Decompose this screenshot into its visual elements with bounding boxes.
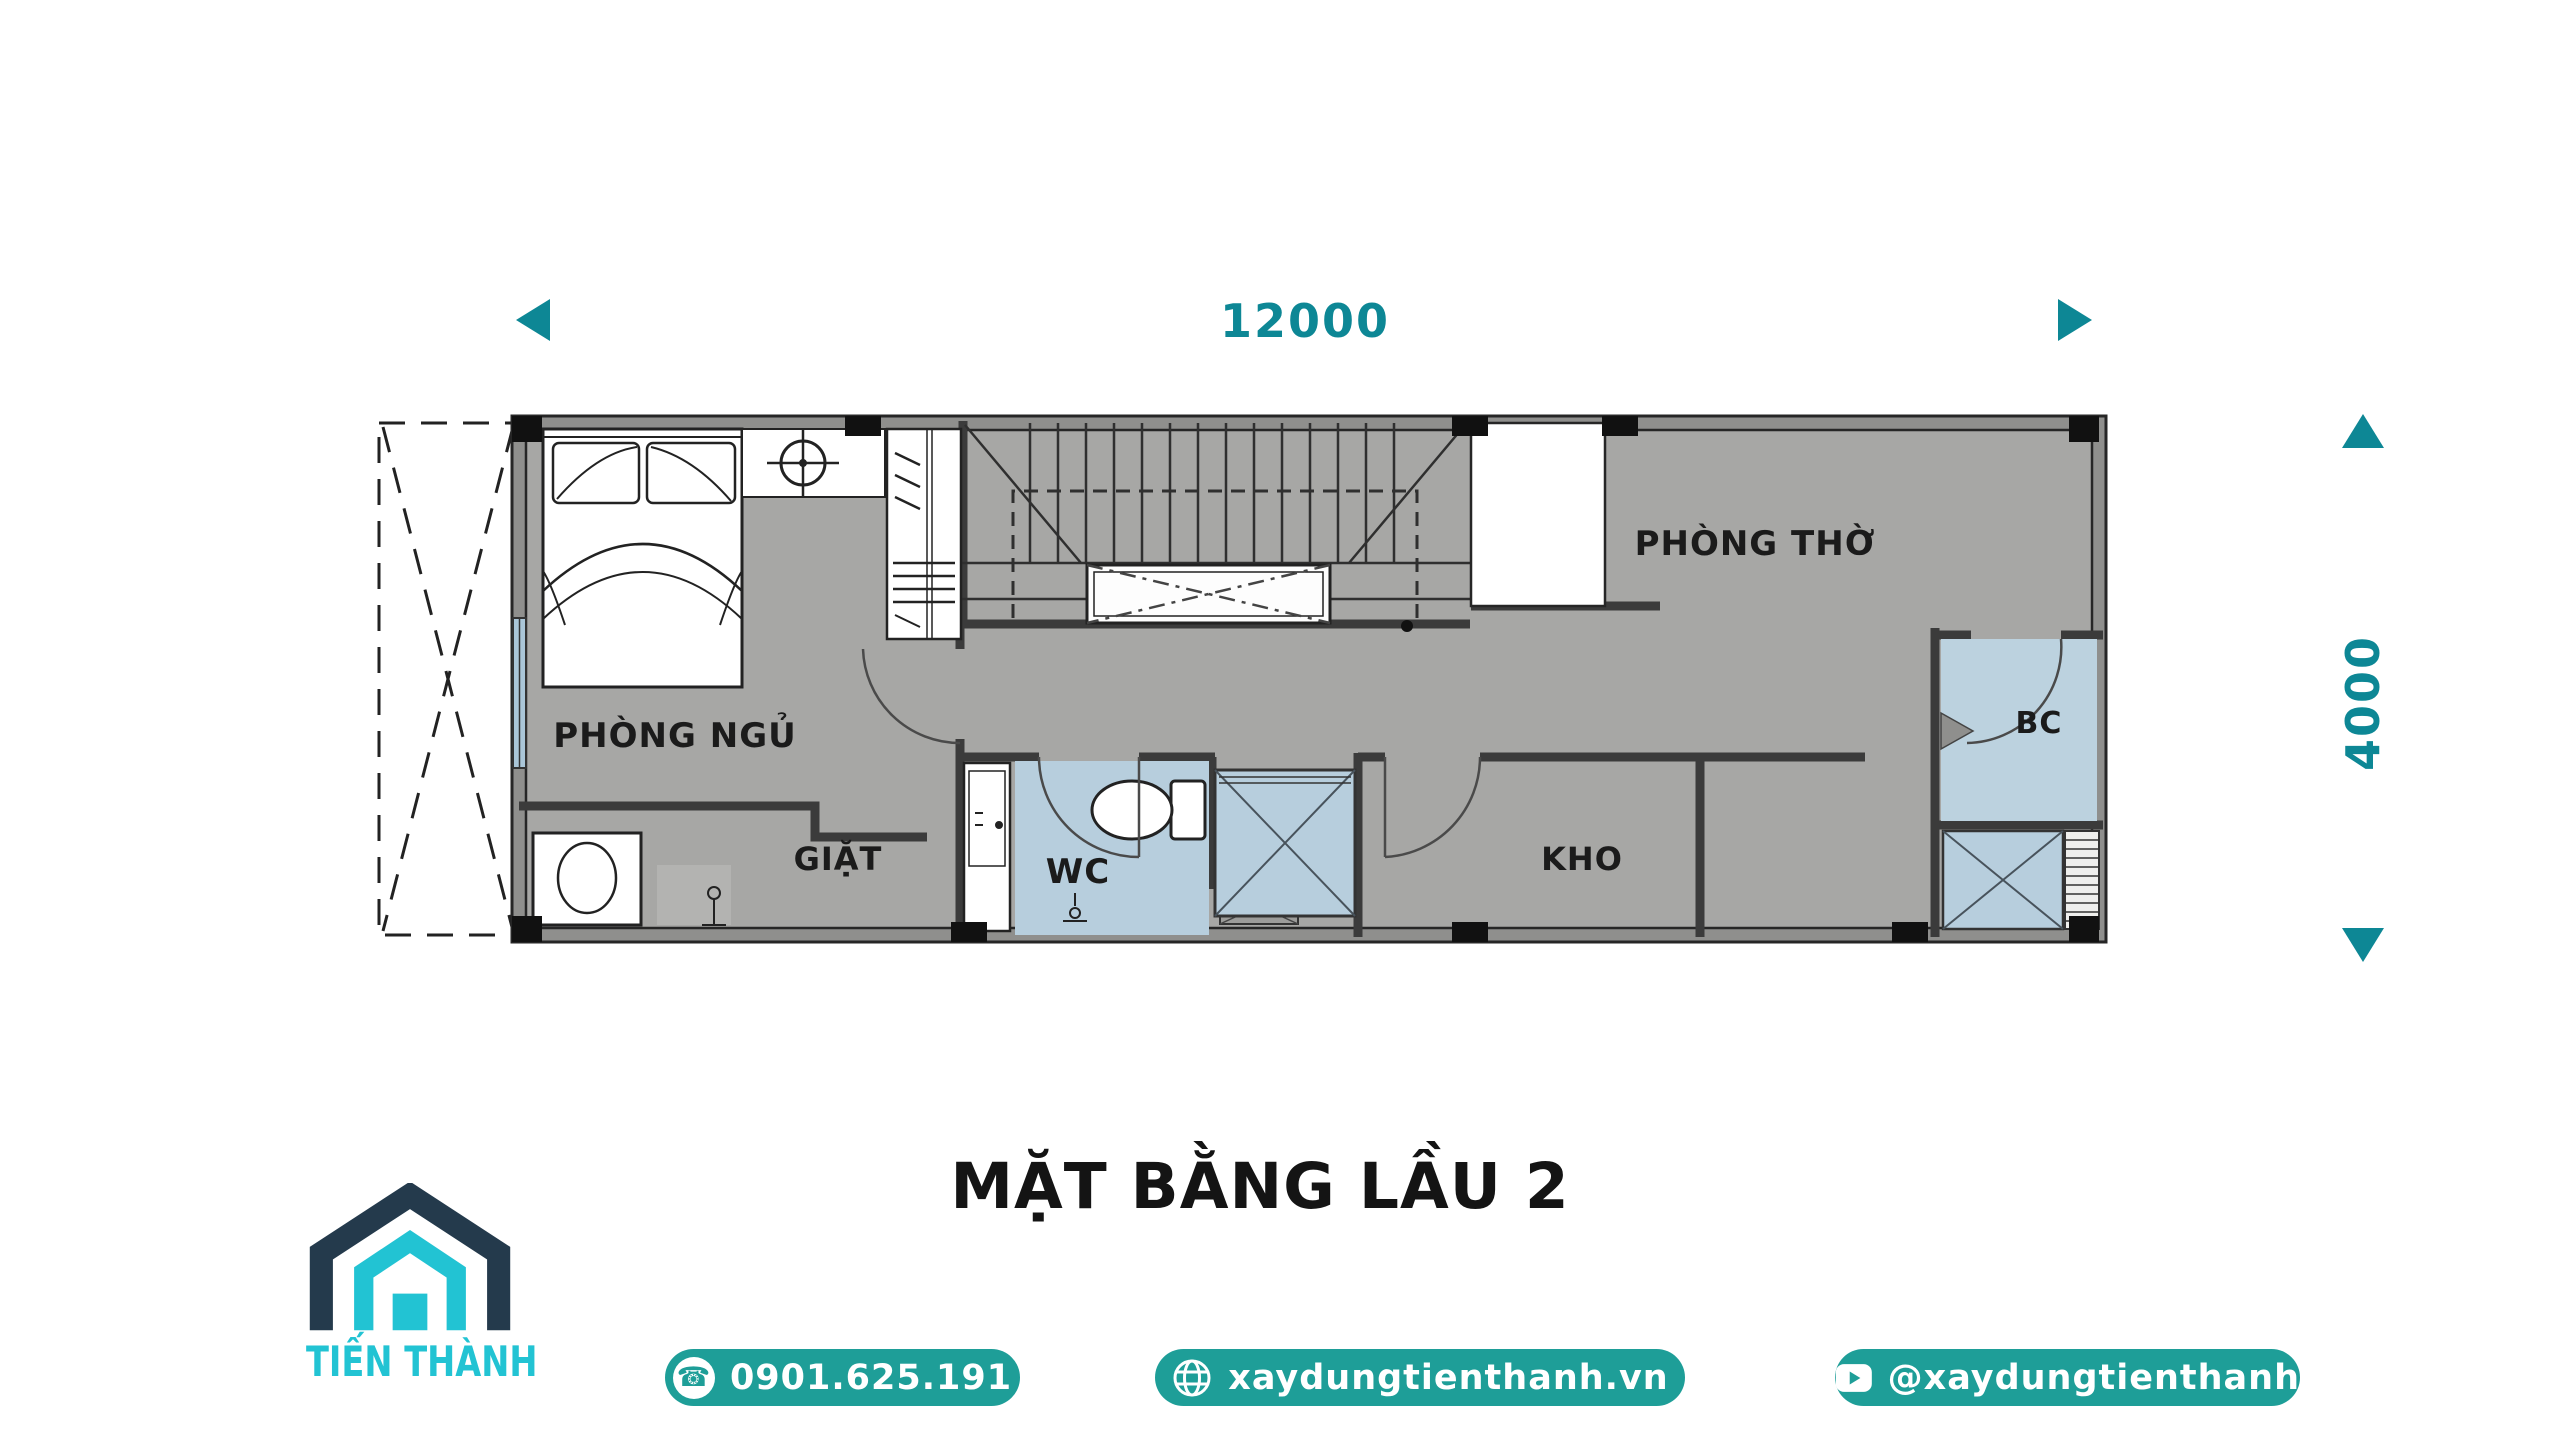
globe-icon <box>1171 1357 1213 1399</box>
phone-number: 0901.625.191 <box>730 1358 1012 1398</box>
room-label-giat: GIẶT <box>794 840 883 878</box>
dim-arrow-up-icon <box>2342 414 2384 448</box>
wardrobe <box>887 429 961 639</box>
toilet <box>1092 781 1205 839</box>
dim-arrow-right-icon <box>2058 299 2092 341</box>
phone-icon: ☎ <box>673 1357 715 1399</box>
window <box>513 618 526 768</box>
ceiling-fan-symbol <box>742 429 885 497</box>
void-overhang <box>379 423 517 935</box>
youtube-button[interactable]: @xaydungtienthanh <box>1835 1349 2300 1406</box>
service-shaft <box>1943 831 2063 929</box>
youtube-handle: @xaydungtienthanh <box>1888 1358 2300 1398</box>
bedroom-bed <box>543 429 742 687</box>
vanity-cabinet <box>964 763 1010 931</box>
floor-plan: PHÒNG NGỦ GIẶT WC KHO PHÒNG THỜ BC <box>375 413 2110 948</box>
dim-arrow-left-icon <box>516 299 550 341</box>
room-label-bc: BC <box>2016 706 2063 741</box>
brand-logo: TIẾN THÀNH <box>280 1183 540 1386</box>
washing-machine <box>533 833 641 925</box>
ladder <box>2065 831 2099 929</box>
room-label-kho: KHO <box>1541 840 1623 878</box>
website-url: xaydungtienthanh.vn <box>1228 1358 1668 1398</box>
dim-width-label: 12000 <box>1005 294 1605 348</box>
worship-void <box>1471 423 1605 606</box>
brand-name: TIẾN THÀNH <box>306 1337 514 1386</box>
dim-height-label: 4000 <box>2336 603 2390 803</box>
house-logo-icon <box>304 1183 516 1331</box>
room-label-phong-tho: PHÒNG THỜ <box>1635 523 1876 564</box>
room-label-phong-ngu: PHÒNG NGỦ <box>553 712 796 756</box>
room-label-wc: WC <box>1046 852 1110 892</box>
youtube-play-icon <box>1835 1360 1873 1396</box>
dim-arrow-down-icon <box>2342 928 2384 962</box>
page-title: MẶT BẰNG LẦU 2 <box>880 1150 1640 1223</box>
phone-button[interactable]: ☎ 0901.625.191 <box>665 1349 1020 1406</box>
shaft <box>1215 770 1355 916</box>
website-button[interactable]: xaydungtienthanh.vn <box>1155 1349 1685 1406</box>
